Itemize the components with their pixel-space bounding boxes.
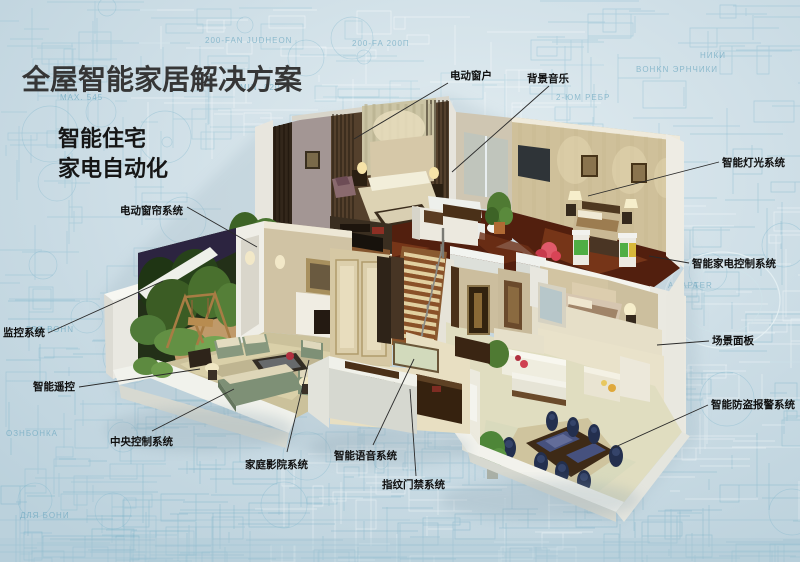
svg-text:背景音乐: 背景音乐 — [527, 72, 569, 85]
svg-text:智能遥控: 智能遥控 — [32, 380, 75, 393]
svg-text:智能家电控制系统: 智能家电控制系统 — [691, 257, 776, 270]
svg-text:200-FA 200П: 200-FA 200П — [352, 39, 410, 48]
svg-text:监控系统: 监控系统 — [3, 326, 45, 339]
svg-text:中央控制系统: 中央控制系统 — [110, 435, 173, 448]
svg-text:НИКИ: НИКИ — [700, 51, 726, 60]
svg-text:智能语音系统: 智能语音系统 — [333, 449, 397, 462]
svg-text:家庭影院系统: 家庭影院系统 — [245, 458, 308, 471]
svg-text:BOHKN ЭРНЧИКИ: BOHKN ЭРНЧИКИ — [636, 65, 718, 74]
svg-text:电动窗帘系统: 电动窗帘系统 — [120, 204, 183, 217]
svg-text:家电自动化: 家电自动化 — [58, 156, 168, 181]
svg-text:ДЛЯ БОНИ: ДЛЯ БОНИ — [20, 511, 70, 520]
svg-text:智能灯光系统: 智能灯光系统 — [721, 156, 785, 169]
svg-text:全屋智能家居解决方案: 全屋智能家居解决方案 — [21, 63, 303, 95]
svg-text:场景面板: 场景面板 — [712, 334, 754, 347]
svg-text:200-FAN JUDHEON: 200-FAN JUDHEON — [205, 36, 292, 45]
svg-text:ОЗНБОНКА: ОЗНБОНКА — [6, 429, 58, 438]
svg-text:智能住宅: 智能住宅 — [58, 126, 146, 151]
svg-text:电动窗户: 电动窗户 — [450, 69, 492, 82]
svg-text:指纹门禁系统: 指纹门禁系统 — [382, 478, 445, 491]
svg-text:2-ЮМ РЕБР: 2-ЮМ РЕБР — [556, 93, 610, 102]
svg-text:智能防盗报警系统: 智能防盗报警系统 — [710, 398, 795, 411]
